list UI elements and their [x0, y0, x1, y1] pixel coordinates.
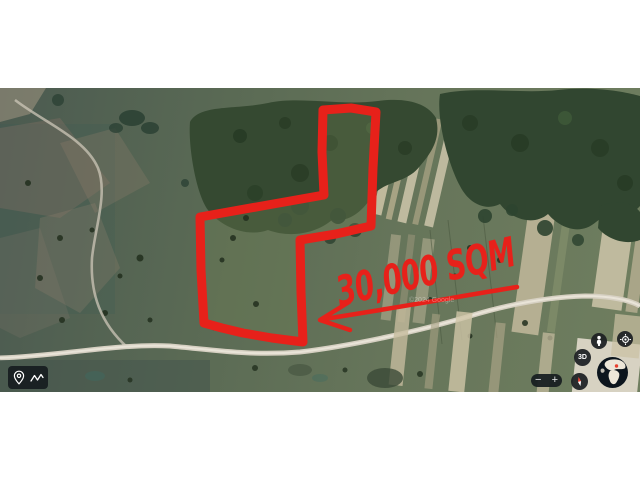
pegman-icon	[593, 335, 605, 347]
earth-globe-icon	[597, 357, 628, 388]
measure-path-button[interactable]	[30, 369, 45, 386]
add-placemark-button[interactable]	[12, 369, 27, 386]
globe-button[interactable]	[597, 357, 628, 388]
compass-button[interactable]	[571, 373, 588, 390]
compass-needle-icon	[573, 375, 586, 388]
3d-view-button[interactable]: 3D	[574, 349, 591, 366]
map-canvas[interactable]	[0, 88, 640, 392]
zoom-control: − +	[531, 374, 562, 387]
street-view-button[interactable]	[591, 333, 607, 349]
zoom-out-button[interactable]: −	[535, 375, 541, 386]
3d-label: 3D	[578, 354, 587, 361]
draw-path-icon	[30, 372, 44, 384]
zoom-in-button[interactable]: +	[552, 375, 558, 386]
screenshot-page: 30,000 SQM ©2024 Google − +	[0, 0, 640, 480]
my-location-icon	[619, 333, 632, 346]
left-toolbar	[8, 366, 48, 389]
location-pin-icon	[13, 370, 25, 385]
my-location-button[interactable]	[617, 331, 633, 347]
satellite-scene	[0, 88, 640, 392]
